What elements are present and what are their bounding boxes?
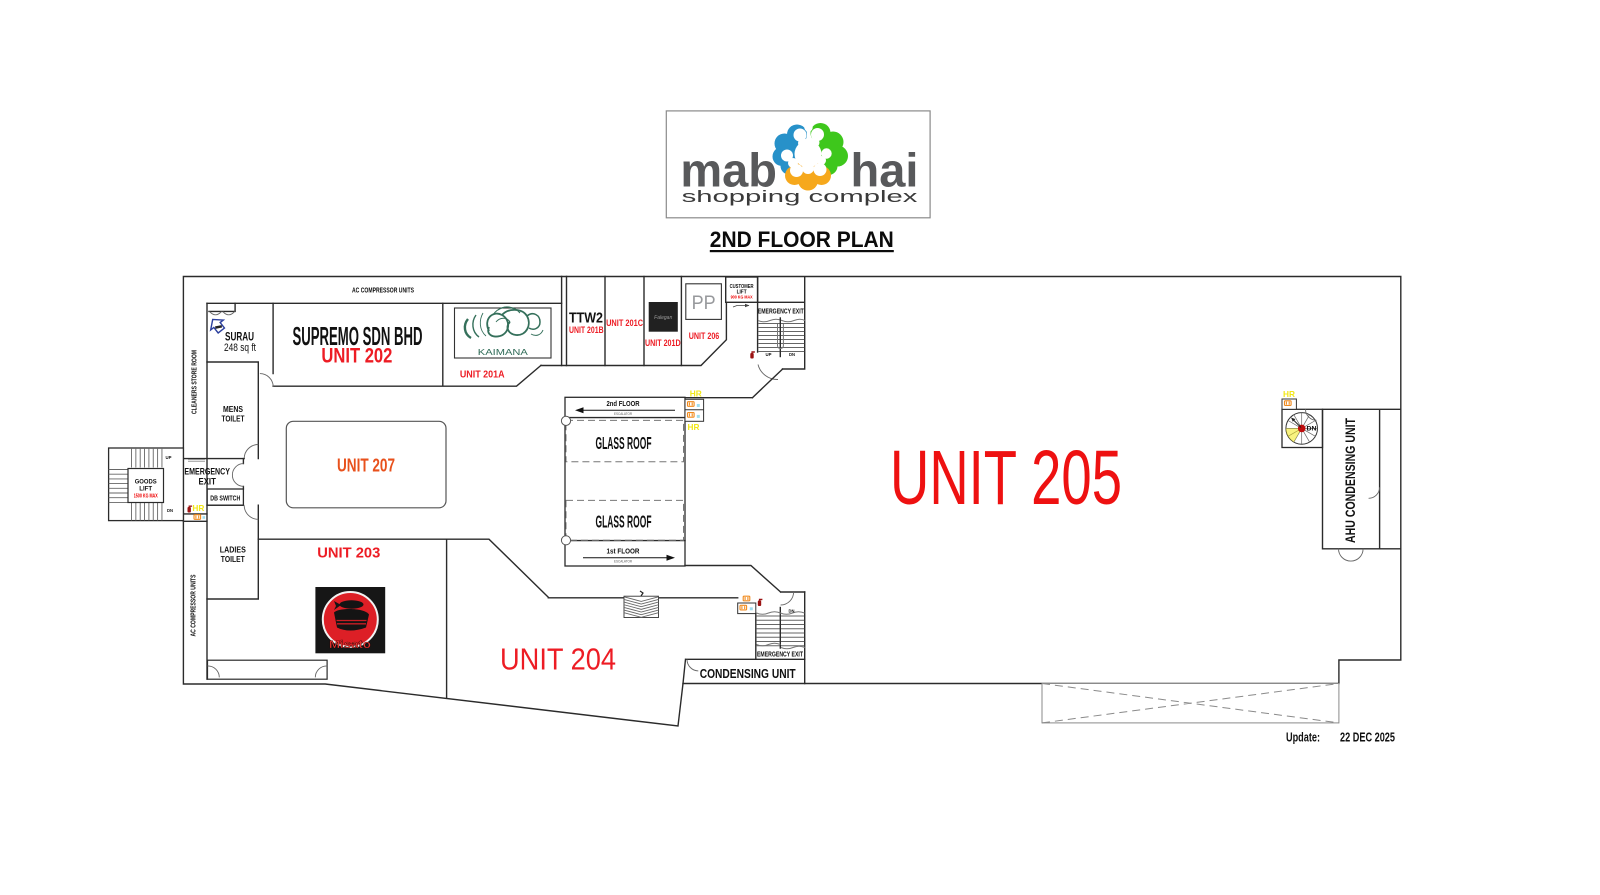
svg-text:LIFT: LIFT (139, 486, 152, 493)
svg-text:GOODS: GOODS (135, 479, 158, 486)
svg-text:ESCALATOR: ESCALATOR (614, 411, 632, 416)
svg-text:248 sq ft: 248 sq ft (224, 342, 256, 354)
svg-text:DN: DN (789, 352, 795, 357)
svg-text:AC COMPRESSOR UNITS: AC COMPRESSOR UNITS (352, 286, 414, 295)
svg-text:CONDENSING UNIT: CONDENSING UNIT (700, 667, 796, 681)
svg-text:EMERGENCY EXIT: EMERGENCY EXIT (757, 649, 803, 658)
svg-text:KAIMANA: KAIMANA (478, 348, 529, 357)
svg-text:Misato: Misato (329, 639, 371, 651)
svg-text:1st FLOOR: 1st FLOOR (607, 547, 640, 556)
svg-text:DB SWITCH: DB SWITCH (210, 496, 240, 503)
svg-text:HR: HR (690, 389, 702, 399)
svg-text:AC COMPRESSOR UNITS: AC COMPRESSOR UNITS (191, 574, 198, 636)
svg-text:HR: HR (1283, 389, 1295, 399)
svg-text:UP: UP (166, 455, 172, 460)
svg-text:UNIT 204: UNIT 204 (500, 642, 616, 677)
svg-text:TTW2: TTW2 (569, 310, 603, 326)
svg-text:Falegan: Falegan (654, 315, 672, 321)
svg-text:HR: HR (192, 503, 204, 513)
svg-text:UNIT 202: UNIT 202 (321, 345, 392, 368)
svg-text:UNIT 201A: UNIT 201A (460, 369, 505, 381)
svg-text:TOILET: TOILET (221, 554, 246, 564)
svg-text:22 DEC 2025: 22 DEC 2025 (1340, 730, 1395, 745)
svg-text:ESCALATOR: ESCALATOR (614, 558, 632, 563)
svg-text:MENS: MENS (223, 404, 243, 414)
svg-text:2nd FLOOR: 2nd FLOOR (607, 399, 640, 408)
svg-text:PP: PP (692, 293, 716, 314)
svg-text:DN: DN (167, 508, 173, 513)
svg-text:UNIT 207: UNIT 207 (337, 456, 395, 476)
svg-text:900 KG MAX: 900 KG MAX (731, 295, 753, 300)
svg-text:CLEANERS STORE ROOM: CLEANERS STORE ROOM (192, 350, 199, 414)
svg-text:EMERGENCY EXIT: EMERGENCY EXIT (758, 307, 804, 316)
svg-text:DN: DN (789, 609, 795, 614)
svg-text:DN: DN (1307, 426, 1317, 433)
svg-text:UNIT 203: UNIT 203 (317, 546, 380, 562)
svg-text:UNIT 206: UNIT 206 (689, 331, 720, 341)
svg-text:UNIT 205: UNIT 205 (890, 435, 1122, 521)
svg-text:AHU CONDENSING UNIT: AHU CONDENSING UNIT (1342, 418, 1358, 543)
svg-text:UNIT 201D: UNIT 201D (645, 338, 681, 348)
svg-text:1500 KG MAX: 1500 KG MAX (134, 494, 158, 500)
svg-text:UNIT 201B: UNIT 201B (569, 325, 604, 335)
svg-text:shopping complex: shopping complex (682, 188, 919, 206)
svg-text:HR: HR (688, 422, 700, 432)
svg-text:EMERGENCY: EMERGENCY (184, 467, 230, 477)
svg-text:2ND FLOOR PLAN: 2ND FLOOR PLAN (710, 227, 894, 252)
svg-text:UNIT 201C: UNIT 201C (606, 318, 643, 328)
svg-text:TOILET: TOILET (222, 414, 246, 424)
svg-text:EXIT: EXIT (199, 477, 217, 487)
svg-text:LADIES: LADIES (220, 545, 246, 555)
svg-text:GLASS ROOF: GLASS ROOF (596, 433, 652, 453)
svg-text:Update:: Update: (1286, 730, 1320, 745)
svg-text:GLASS ROOF: GLASS ROOF (596, 512, 652, 532)
svg-text:UP: UP (766, 352, 772, 357)
